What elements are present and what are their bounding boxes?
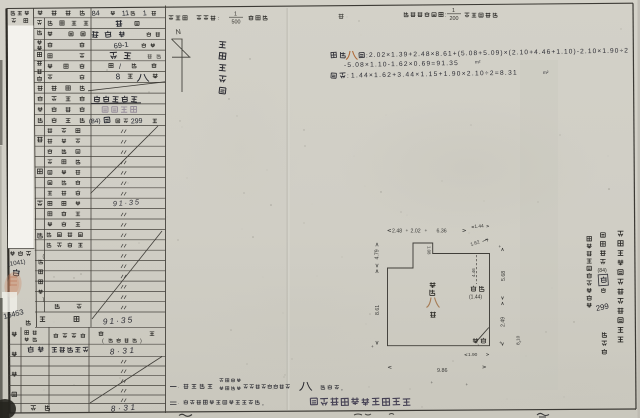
svg-text:1.08: 1.08	[426, 246, 431, 255]
svg-text:5.68: 5.68	[501, 271, 507, 281]
svg-text:299: 299	[131, 118, 143, 126]
svg-text:1: 1	[234, 12, 237, 18]
svg-text:。: 。	[262, 401, 267, 406]
svg-text:m²: m²	[475, 60, 481, 65]
svg-text:+: +	[406, 229, 409, 234]
svg-text:+: +	[431, 380, 434, 385]
svg-text:(84): (84)	[598, 268, 607, 274]
svg-text:(: (	[102, 339, 104, 345]
svg-text:8.61: 8.61	[375, 305, 381, 315]
svg-text:。: 。	[341, 386, 346, 391]
svg-text:8·31: 8·31	[110, 346, 137, 357]
svg-text:11: 11	[122, 10, 130, 18]
svg-text:+: +	[371, 344, 374, 349]
svg-text:69-1: 69-1	[113, 40, 129, 51]
svg-text:2.49: 2.49	[501, 317, 507, 327]
svg-text:+: +	[466, 382, 469, 387]
svg-text::: :	[347, 73, 349, 80]
svg-text:(1.44): (1.44)	[469, 295, 482, 301]
svg-text:84: 84	[91, 8, 100, 18]
svg-text:m²: m²	[543, 70, 549, 75]
svg-text:+: +	[499, 340, 502, 345]
svg-text:8·31: 8·31	[111, 403, 138, 414]
svg-text:+: +	[499, 244, 502, 249]
svg-text:1.90: 1.90	[468, 352, 478, 358]
svg-text:(84): (84)	[89, 118, 101, 126]
svg-text:·: ·	[178, 401, 180, 406]
svg-text:200: 200	[450, 16, 459, 22]
svg-text:4.79: 4.79	[375, 249, 381, 259]
svg-text:9.86: 9.86	[437, 368, 448, 374]
svg-text::: :	[366, 53, 368, 60]
svg-text:): )	[140, 339, 142, 345]
svg-text:2.02: 2.02	[411, 228, 421, 234]
svg-text:6.36: 6.36	[437, 228, 447, 234]
svg-text:1: 1	[143, 10, 148, 17]
svg-text:1.44: 1.44	[474, 223, 484, 230]
svg-text:4.46: 4.46	[471, 268, 476, 277]
svg-text:·: ·	[178, 385, 180, 390]
svg-text:1: 1	[452, 8, 455, 14]
svg-text:500: 500	[232, 19, 241, 25]
svg-text:2.48: 2.48	[392, 228, 402, 234]
svg-text:/: /	[119, 62, 121, 71]
svg-text:+: +	[425, 229, 428, 234]
